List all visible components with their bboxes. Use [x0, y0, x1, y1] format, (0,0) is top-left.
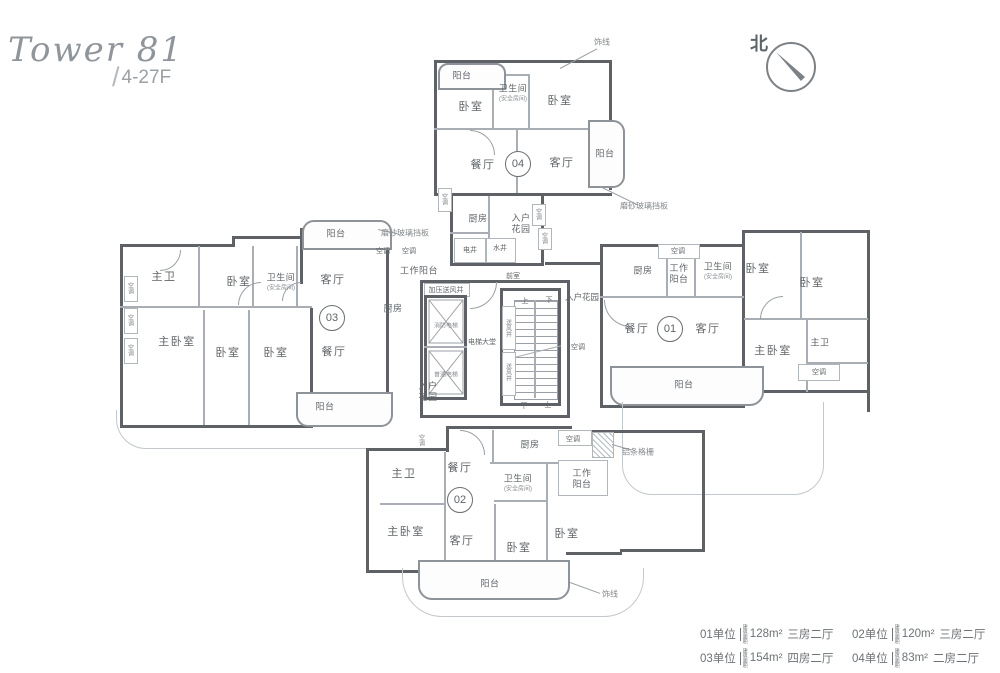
stairs-up-label: 上 [545, 400, 552, 410]
wall-segment [438, 63, 506, 90]
stairs-up-label: 上 [522, 296, 529, 306]
ac-unit-label: 空调 [417, 434, 426, 446]
aluminum-grille [592, 432, 614, 458]
bedroom-label: 卧室 [548, 92, 573, 108]
wall-segment [702, 430, 705, 552]
legend-item: 02单位建筑面积120m²三房二厅 [852, 624, 992, 644]
wall-segment [424, 346, 467, 348]
unit-04-badge: 04 [505, 151, 531, 177]
unit-01-badge: 01 [657, 316, 683, 342]
legend-layout: 三房二厅 [939, 626, 985, 642]
bedroom-label: 卧室 [746, 260, 771, 276]
frosted-glass-panel-note: 磨砂玻璃挡板 [381, 228, 429, 239]
wall-segment [492, 430, 494, 464]
trim-line-note: 饰线 [602, 589, 618, 600]
wall-segment [232, 236, 302, 239]
wall-segment [203, 310, 205, 425]
dining-room-label: 餐厅 [471, 156, 496, 172]
frosted-glass-panel-note: 磨砂玻璃挡板 [620, 201, 668, 212]
wall-segment [566, 552, 622, 555]
ac-unit-label: 空调 [376, 246, 390, 256]
safe-room-note: (安全房间) [504, 484, 532, 493]
kitchen-label: 厨房 [633, 264, 652, 277]
master-bath-label: 主卫 [152, 268, 177, 284]
dining-room-label: 餐厅 [625, 320, 650, 336]
dining-room-label: 餐厅 [322, 343, 347, 359]
wall-segment [434, 193, 612, 196]
wall-segment [534, 300, 536, 398]
balcony-label: 阳台 [452, 69, 471, 82]
entry-garden-label: 入户花园 [508, 213, 534, 235]
trim-line-note: 饰线 [594, 37, 610, 48]
safe-room-note: (安全房间) [704, 272, 732, 281]
wall-segment [500, 403, 561, 406]
legend-unit: 02单位 [852, 626, 888, 642]
entry-garden-label: 入户花园 [415, 381, 441, 403]
ac-unit-label: 空调 [540, 232, 549, 244]
fire-elevator-label: 消防电梯 [434, 321, 458, 330]
utility-balcony-label: 工作阳台 [569, 468, 595, 490]
legend-layout: 四房二厅 [787, 650, 833, 666]
wall-segment [366, 448, 448, 451]
legend-area: 128m² [750, 628, 783, 640]
aluminum-grille-note: 铝条格栅 [622, 447, 654, 458]
legend-area: 120m² [902, 628, 935, 640]
air-shaft-label: 送风井 [504, 319, 513, 337]
legend-unit: 03单位 [700, 650, 736, 666]
ac-unit-label: 空调 [402, 246, 416, 256]
master-bedroom-label: 主卧室 [387, 523, 425, 539]
legend-item: 03单位建筑面积154m²四房二厅 [700, 648, 852, 668]
ac-unit-label: 空调 [812, 367, 826, 377]
bedroom-label: 卧室 [555, 525, 580, 541]
legend-divider [892, 652, 893, 665]
wall-segment [460, 430, 485, 455]
bedroom-label: 卧室 [459, 98, 484, 114]
wall-segment [198, 246, 200, 306]
balcony-label: 阳台 [674, 378, 693, 391]
floorplan-page: { "title": { "name": "Tower 81", "slash"… [0, 0, 1000, 673]
legend-area-note: 建筑面积 [894, 624, 899, 644]
unit-03-badge: 03 [319, 305, 345, 331]
kitchen-label: 厨房 [383, 302, 402, 315]
wall-segment [232, 236, 235, 247]
living-room-label: 客厅 [321, 271, 346, 287]
wall-segment [742, 230, 870, 233]
ac-unit-label: 空调 [126, 344, 135, 356]
legend-unit: 04单位 [852, 650, 888, 666]
wall-segment [450, 232, 490, 234]
wall-segment [446, 426, 572, 429]
legend-item: 04单位建筑面积83m²二房二厅 [852, 648, 992, 668]
bedroom-label: 卧室 [800, 274, 825, 290]
legend-area-note: 建筑面积 [742, 624, 747, 644]
ac-unit-label: 空调 [534, 208, 543, 220]
balcony-label: 阳台 [326, 227, 345, 240]
wall-segment [528, 74, 530, 128]
legend-area-note: 建筑面积 [894, 648, 899, 668]
wall-segment [560, 48, 598, 69]
stairs-down-label: 下 [521, 401, 528, 411]
stairs [514, 300, 558, 400]
wall-segment [500, 288, 561, 291]
elevator-lobby-label: 电梯大堂 [468, 337, 496, 347]
vestibule-label: 前室 [506, 271, 520, 281]
wall-segment [446, 426, 449, 452]
water-shaft-label: 水井 [493, 243, 507, 253]
living-room-label: 客厅 [550, 154, 575, 170]
utility-balcony-label: 工作阳台 [400, 264, 438, 277]
wall-segment [120, 306, 312, 308]
kitchen-label: 厨房 [520, 438, 539, 451]
wall-segment [424, 295, 467, 298]
master-bath-label: 主卫 [810, 336, 829, 349]
stairs-down-label: 下 [546, 295, 553, 305]
living-room-label: 客厅 [450, 532, 475, 548]
wall-segment [742, 230, 745, 247]
electric-shaft-label: 电井 [463, 245, 477, 255]
legend: 01单位建筑面积128m²三房二厅02单位建筑面积120m²三房二厅03单位建筑… [700, 624, 992, 668]
pressurized-air-shaft-label: 加压送风井 [429, 285, 464, 295]
ac-unit-label: 空调 [126, 314, 135, 326]
wall-segment [116, 410, 395, 449]
wall-segment [600, 244, 603, 408]
legend-layout: 三房二厅 [787, 626, 833, 642]
ac-unit-label: 空调 [126, 282, 135, 294]
legend-area-note: 建筑面积 [742, 648, 747, 668]
wall-segment [620, 549, 705, 552]
legend-unit: 01单位 [700, 626, 736, 642]
bedroom-label: 卧室 [227, 273, 252, 289]
wall-segment [420, 415, 570, 418]
safe-room-note: (安全房间) [499, 94, 527, 103]
wall-segment [470, 130, 495, 155]
living-room-label: 客厅 [696, 320, 721, 336]
master-bath-label: 主卫 [392, 465, 417, 481]
bedroom-label: 卧室 [507, 539, 532, 555]
legend-area: 154m² [750, 652, 783, 664]
wall-segment [450, 263, 544, 266]
legend-divider [892, 628, 893, 641]
master-bedroom-label: 主卧室 [754, 342, 792, 358]
wall-segment [434, 128, 612, 130]
wall-segment [558, 288, 561, 406]
legend-item: 01单位建筑面积128m²三房二厅 [700, 624, 852, 644]
unit-02-badge: 02 [447, 487, 473, 513]
wall-segment [386, 244, 389, 398]
bedroom-label: 卧室 [264, 344, 289, 360]
ac-unit-label: 空调 [566, 434, 580, 444]
dining-room-label: 餐厅 [448, 459, 473, 475]
legend-divider [740, 652, 741, 665]
entry-garden-label: 入户花园 [565, 291, 599, 303]
wall-segment [546, 462, 548, 502]
wall-segment [494, 500, 546, 502]
kitchen-label: 厨房 [468, 212, 487, 225]
safe-room-note: (安全房间) [267, 283, 295, 292]
floor-plan: 阳台卫生间(安全房间)卧室卧室餐厅客厅阳台饰线磨砂玻璃挡板厨房入户花园电井水井空… [0, 0, 1000, 673]
ac-unit-label: 空调 [440, 193, 449, 205]
legend-layout: 二房二厅 [933, 650, 979, 666]
ac-unit-label: 空调 [571, 342, 585, 352]
master-bedroom-label: 主卧室 [158, 333, 196, 349]
wall-segment [867, 230, 870, 412]
wall-segment [545, 262, 603, 265]
ac-unit-label: 空调 [671, 246, 685, 256]
wall-segment [380, 503, 446, 505]
balcony-label: 阳台 [315, 400, 334, 413]
wall-segment [470, 282, 497, 309]
wall-segment [444, 452, 446, 572]
wall-segment [120, 244, 123, 428]
wall-segment [248, 310, 250, 425]
wall-segment [366, 448, 369, 572]
wall-segment [120, 244, 234, 247]
balcony-label: 阳台 [480, 577, 499, 590]
bedroom-label: 卧室 [216, 344, 241, 360]
legend-area: 83m² [902, 652, 928, 664]
air-shaft-label: 送风井 [504, 363, 513, 381]
passenger-elevator-label: 普通电梯 [434, 370, 458, 379]
wall-segment [760, 296, 783, 319]
utility-balcony-label: 工作阳台 [666, 263, 692, 285]
balcony-label: 阳台 [595, 147, 614, 160]
wall-segment [600, 296, 744, 298]
legend-divider [740, 628, 741, 641]
